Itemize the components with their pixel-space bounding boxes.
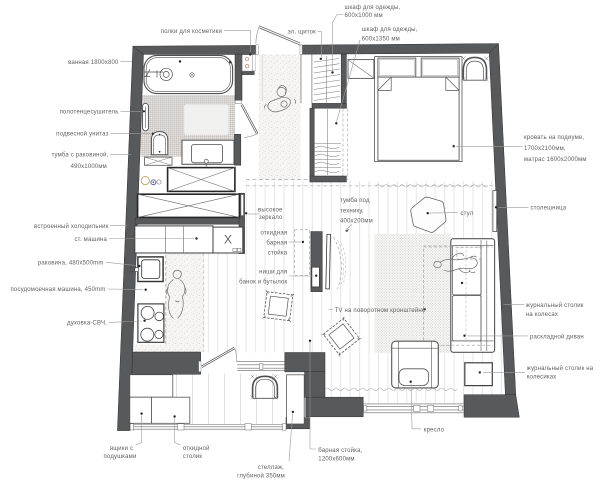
svg-text:технику,: технику, bbox=[340, 208, 364, 214]
svg-text:высокое: высокое bbox=[258, 207, 283, 213]
svg-text:барная стойка,: барная стойка, bbox=[318, 447, 362, 454]
svg-text:журнальный столик на: журнальный столик на bbox=[527, 365, 594, 372]
svg-text:подвесной унитаз: подвесной унитаз bbox=[56, 131, 108, 138]
svg-text:TV на поворотном кронштейне: TV на поворотном кронштейне bbox=[335, 307, 426, 314]
svg-text:ванная 1800x800: ванная 1800x800 bbox=[68, 60, 119, 66]
svg-text:откидной: откидной bbox=[183, 445, 210, 452]
svg-text:духовка-СВЧ,: духовка-СВЧ, bbox=[67, 321, 107, 327]
svg-text:тумба под: тумба под bbox=[340, 198, 370, 204]
svg-text:стеллаж,: стеллаж, bbox=[258, 465, 284, 471]
svg-text:стойка: стойка bbox=[268, 249, 288, 256]
svg-text:кровать на подиуме,: кровать на подиуме, bbox=[524, 135, 584, 141]
svg-text:журнальный столик: журнальный столик bbox=[526, 302, 584, 309]
svg-text:600x1000 мм: 600x1000 мм bbox=[345, 13, 383, 19]
svg-text:490x1000мм: 490x1000мм bbox=[71, 164, 107, 170]
svg-text:столик: столик bbox=[183, 454, 203, 460]
svg-text:ниши для: ниши для bbox=[259, 269, 287, 275]
svg-text:на колесах: на колесах bbox=[526, 312, 558, 318]
svg-text:X: X bbox=[224, 233, 232, 247]
svg-text:стул: стул bbox=[461, 211, 474, 217]
svg-text:посудомоечная машина, 450mm: посудомоечная машина, 450mm bbox=[11, 287, 106, 293]
svg-text:подушками: подушками bbox=[104, 454, 137, 460]
svg-text:шкаф для одежды,: шкаф для одежды, bbox=[345, 5, 401, 11]
svg-text:столешница: столешница bbox=[531, 206, 567, 212]
svg-text:эл. щиток: эл. щиток bbox=[288, 30, 317, 36]
svg-text:откидная: откидная bbox=[261, 230, 288, 236]
svg-text:колесиках: колесиках bbox=[527, 374, 557, 380]
svg-text:барная: барная bbox=[266, 240, 287, 246]
svg-text:1700x2100мм,: 1700x2100мм, bbox=[524, 146, 566, 152]
svg-text:зеркало: зеркало bbox=[259, 215, 283, 221]
svg-text:глубиной 350мм: глубиной 350мм bbox=[237, 472, 285, 479]
svg-text:400x200мм: 400x200мм bbox=[340, 219, 373, 225]
svg-text:ст. машина: ст. машина bbox=[75, 237, 108, 243]
svg-text:ящики с: ящики с bbox=[110, 446, 133, 452]
svg-text:матрас 1600x2000мм: матрас 1600x2000мм bbox=[524, 157, 587, 163]
svg-text:раскладной диван: раскладной диван bbox=[530, 334, 584, 341]
svg-text:600x1350 мм: 600x1350 мм bbox=[362, 37, 400, 43]
svg-text:полотенцесушитель: полотенцесушитель bbox=[60, 110, 119, 116]
svg-text:полки для косметики: полки для косметики bbox=[161, 29, 222, 35]
svg-text:тумба с раковиной,: тумба с раковиной, bbox=[52, 152, 109, 159]
svg-text:банок и бутылок: банок и бутылок bbox=[239, 279, 287, 285]
svg-text:шкаф для одежды,: шкаф для одежды, bbox=[362, 27, 418, 33]
svg-text:1200x600мм: 1200x600мм bbox=[318, 456, 354, 462]
svg-text:раковина, 480x500mm: раковина, 480x500mm bbox=[38, 260, 104, 266]
svg-text:встроенный холодильник: встроенный холодильник bbox=[34, 223, 109, 230]
svg-text:кресло: кресло bbox=[424, 427, 445, 433]
